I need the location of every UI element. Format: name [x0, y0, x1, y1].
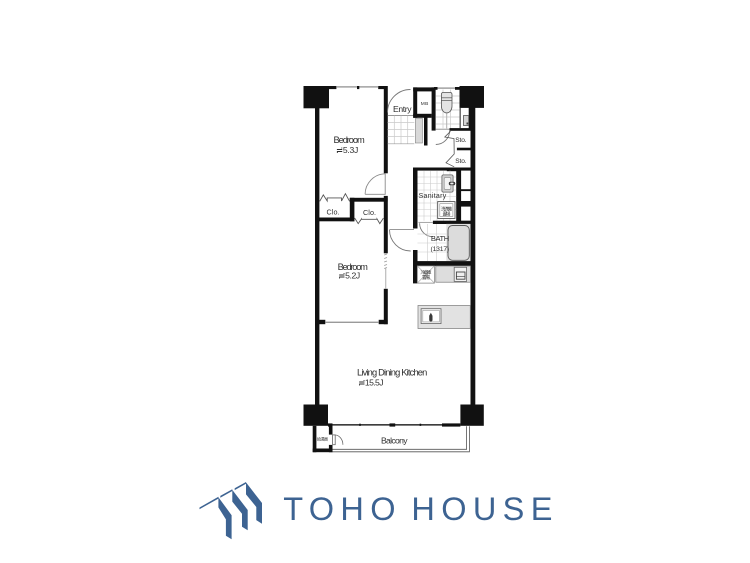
svg-text:給湯器: 給湯器 — [317, 435, 328, 441]
svg-text:≓15.5J: ≓15.5J — [358, 377, 383, 387]
svg-text:置場: 置場 — [443, 211, 451, 218]
svg-text:Clo.: Clo. — [327, 207, 340, 216]
svg-text:HOUSE: HOUSE — [411, 491, 552, 527]
svg-text:≓5.2J: ≓5.2J — [338, 271, 360, 281]
svg-text:≓5.3J: ≓5.3J — [336, 145, 358, 155]
svg-text:Balcony: Balcony — [381, 436, 408, 446]
svg-text:MB: MB — [421, 101, 429, 107]
svg-text:Sto.: Sto. — [455, 158, 466, 165]
svg-text:Sto.: Sto. — [455, 137, 466, 144]
svg-text:Bedroom: Bedroom — [334, 135, 365, 145]
svg-text:Sanitary: Sanitary — [419, 193, 447, 200]
svg-text:置場: 置場 — [422, 274, 430, 281]
svg-text:BATH: BATH — [431, 234, 449, 243]
svg-text:(1317): (1317) — [431, 246, 450, 253]
svg-text:Clo.: Clo. — [363, 208, 376, 217]
svg-text:Entry: Entry — [393, 104, 412, 114]
svg-text:Living Dining Kitchen: Living Dining Kitchen — [357, 367, 427, 377]
